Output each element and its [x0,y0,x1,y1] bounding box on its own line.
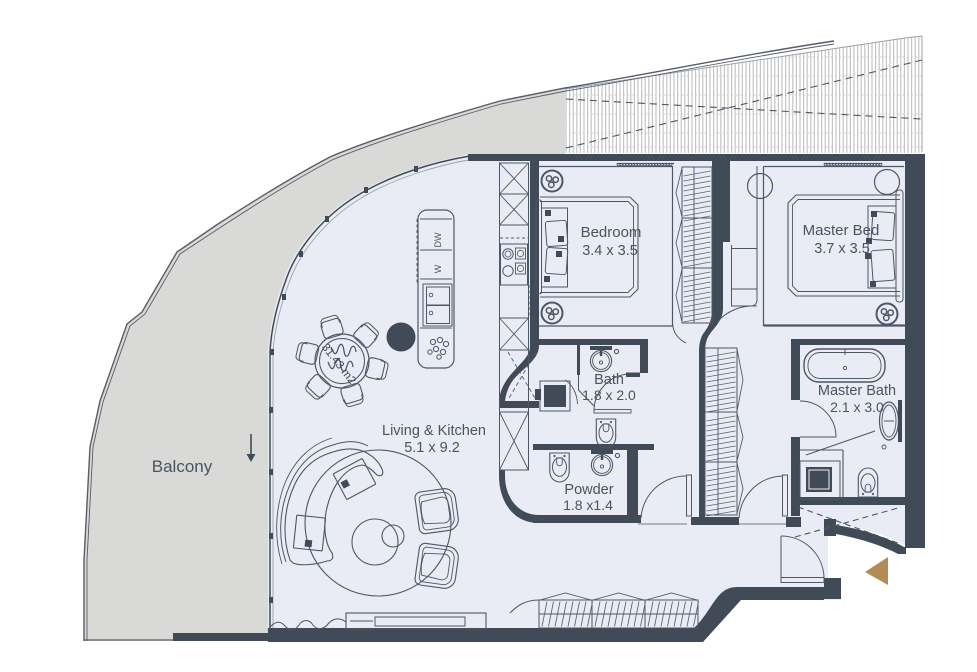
svg-text:DW: DW [433,232,443,247]
svg-text:Master Bed: Master Bed [803,222,880,239]
svg-text:Powder: Powder [564,482,613,498]
svg-text:Balcony: Balcony [152,457,213,476]
svg-text:Master Bath: Master Bath [818,383,896,399]
svg-text:1.8 x 2.0: 1.8 x 2.0 [582,387,636,403]
svg-text:2.1 x 3.0: 2.1 x 3.0 [830,399,884,415]
svg-text:W: W [433,264,443,273]
svg-text:3.7 x 3.5: 3.7 x 3.5 [814,241,870,257]
svg-text:Living & Kitchen: Living & Kitchen [382,423,486,439]
svg-text:3.4 x 3.5: 3.4 x 3.5 [582,243,638,259]
svg-text:5.1 x 9.2: 5.1 x 9.2 [404,440,460,456]
svg-text:1.8 x1.4: 1.8 x1.4 [563,497,613,513]
svg-text:Bath: Bath [594,372,624,388]
svg-text:Bedroom: Bedroom [581,224,642,241]
